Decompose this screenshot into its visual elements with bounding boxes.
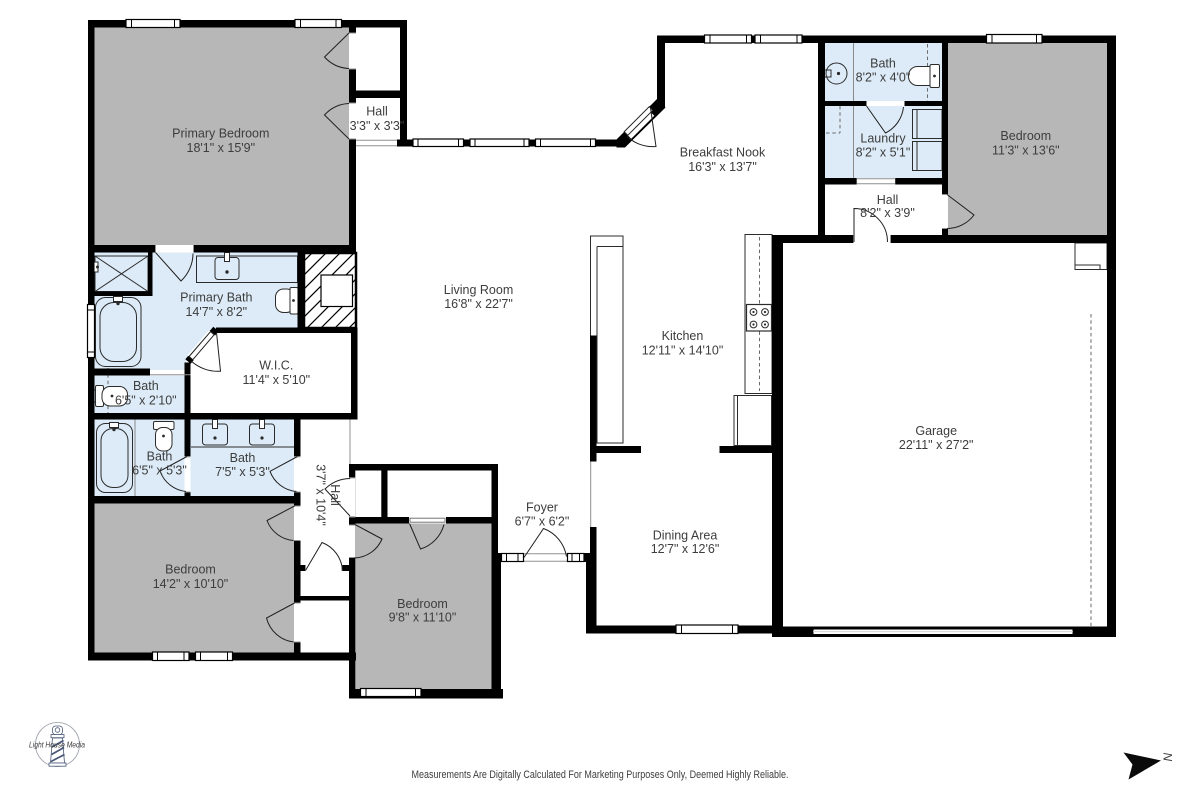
svg-text:8'2" x 5'1": 8'2" x 5'1" xyxy=(856,146,911,160)
svg-text:Bath: Bath xyxy=(230,451,256,465)
svg-text:3'7" x 10'4": 3'7" x 10'4" xyxy=(314,464,328,526)
svg-text:Bath: Bath xyxy=(870,56,896,70)
svg-text:16'8" x 22'7": 16'8" x 22'7" xyxy=(444,297,513,311)
svg-text:8'2" x 4'0": 8'2" x 4'0" xyxy=(856,71,911,85)
svg-text:Primary Bedroom: Primary Bedroom xyxy=(172,126,269,140)
svg-text:Breakfast Nook: Breakfast Nook xyxy=(680,146,766,160)
svg-text:Bedroom: Bedroom xyxy=(397,597,448,611)
svg-text:14'7" x 8'2": 14'7" x 8'2" xyxy=(185,305,247,319)
svg-text:8'2" x 3'9": 8'2" x 3'9" xyxy=(860,206,915,220)
svg-text:18'1" x 15'9": 18'1" x 15'9" xyxy=(187,141,256,155)
svg-text:11'3" x 13'6": 11'3" x 13'6" xyxy=(992,144,1060,158)
svg-text:Primary Bath: Primary Bath xyxy=(180,291,252,305)
svg-text:Garage: Garage xyxy=(915,424,957,438)
svg-text:Bath: Bath xyxy=(133,379,159,393)
svg-text:Light House Media: Light House Media xyxy=(29,741,85,750)
svg-text:Hall: Hall xyxy=(366,105,388,119)
svg-text:12'7" x 12'6": 12'7" x 12'6" xyxy=(651,542,720,556)
svg-text:Living Room: Living Room xyxy=(444,283,513,297)
svg-text:7'5" x 5'3": 7'5" x 5'3" xyxy=(215,465,270,479)
svg-text:Bedroom: Bedroom xyxy=(165,562,216,576)
svg-text:14'2" x 10'10": 14'2" x 10'10" xyxy=(153,577,229,591)
svg-text:11'4" x 5'10": 11'4" x 5'10" xyxy=(242,373,310,387)
svg-text:Laundry: Laundry xyxy=(860,131,906,145)
svg-text:6'7" x 6'2": 6'7" x 6'2" xyxy=(515,515,570,529)
svg-text:6'5" x 5'3": 6'5" x 5'3" xyxy=(132,463,187,477)
svg-text:Kitchen: Kitchen xyxy=(662,329,704,343)
svg-text:Bath: Bath xyxy=(147,450,173,464)
svg-text:12'11" x 14'10": 12'11" x 14'10" xyxy=(642,343,724,357)
svg-text:Measurements Are Digitally Cal: Measurements Are Digitally Calculated Fo… xyxy=(412,769,789,781)
svg-text:16'3" x 13'7": 16'3" x 13'7" xyxy=(688,160,757,174)
svg-text:Hall: Hall xyxy=(877,193,899,207)
svg-text:Bedroom: Bedroom xyxy=(1000,129,1051,143)
svg-text:Dining Area: Dining Area xyxy=(653,528,718,542)
svg-text:9'8" x 11'10": 9'8" x 11'10" xyxy=(389,611,457,625)
svg-text:N: N xyxy=(1161,753,1175,762)
svg-text:W.I.C.: W.I.C. xyxy=(259,358,293,372)
svg-text:Foyer: Foyer xyxy=(526,500,558,514)
svg-text:22'11" x 27'2": 22'11" x 27'2" xyxy=(899,438,974,452)
svg-text:3'3" x 3'3": 3'3" x 3'3" xyxy=(350,119,405,133)
svg-text:Hall: Hall xyxy=(328,484,342,506)
svg-text:6'5" x 2'10": 6'5" x 2'10" xyxy=(115,393,177,407)
